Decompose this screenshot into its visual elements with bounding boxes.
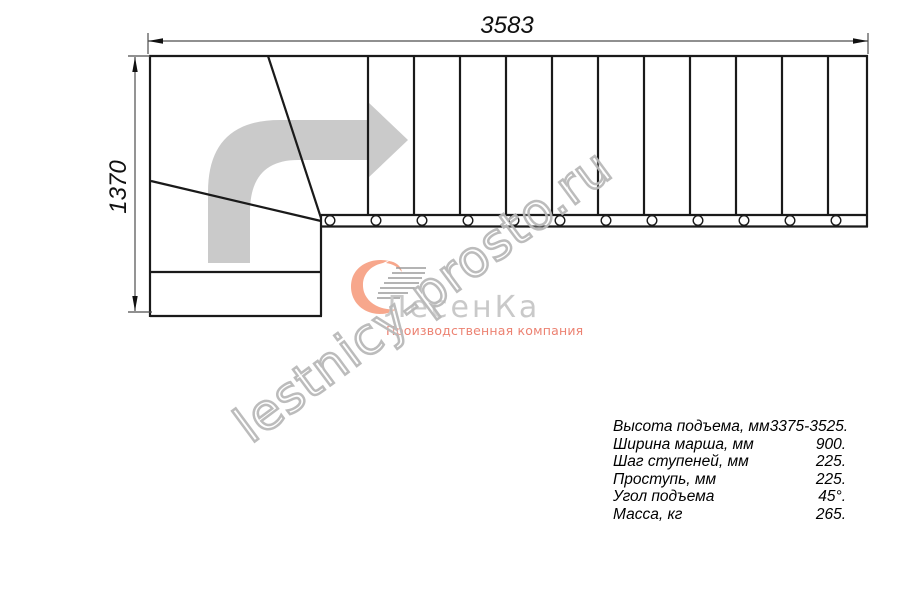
spec-row-height: Высота подъема, мм 3375-3525. bbox=[613, 418, 846, 436]
spec-label: Масса, кг bbox=[613, 506, 682, 524]
spec-row-mass: Масса, кг 265. bbox=[613, 506, 846, 524]
dimension-height-label: 1370 bbox=[105, 159, 129, 215]
spec-table: Высота подъема, мм 3375-3525. Ширина мар… bbox=[613, 418, 846, 524]
spec-row-angle: Угол подъема 45°. bbox=[613, 488, 846, 506]
spec-row-width: Ширина марша, мм 900. bbox=[613, 436, 846, 454]
spec-label: Высота подъема, мм bbox=[613, 418, 770, 436]
spec-label: Шаг ступеней, мм bbox=[613, 453, 749, 471]
direction-arrow-icon bbox=[208, 102, 408, 263]
spec-value: 225. bbox=[816, 453, 846, 471]
spec-value: 900. bbox=[816, 436, 846, 454]
spec-value: 3375-3525. bbox=[770, 418, 848, 436]
baluster-circles bbox=[325, 216, 841, 226]
spec-row-step: Шаг ступеней, мм 225. bbox=[613, 453, 846, 471]
dimension-width-label: 3583 bbox=[452, 12, 562, 40]
spec-label: Проступь, мм bbox=[613, 471, 716, 489]
spec-label: Угол подъема bbox=[613, 488, 714, 506]
spec-value: 225. bbox=[816, 471, 846, 489]
spec-label: Ширина марша, мм bbox=[613, 436, 754, 454]
spec-value: 45°. bbox=[818, 488, 846, 506]
spec-value: 265. bbox=[816, 506, 846, 524]
spec-row-tread: Проступь, мм 225. bbox=[613, 471, 846, 489]
staircase-drawing-sheet: 3583 1370 ЛесенКа Производственная компа… bbox=[0, 0, 900, 600]
